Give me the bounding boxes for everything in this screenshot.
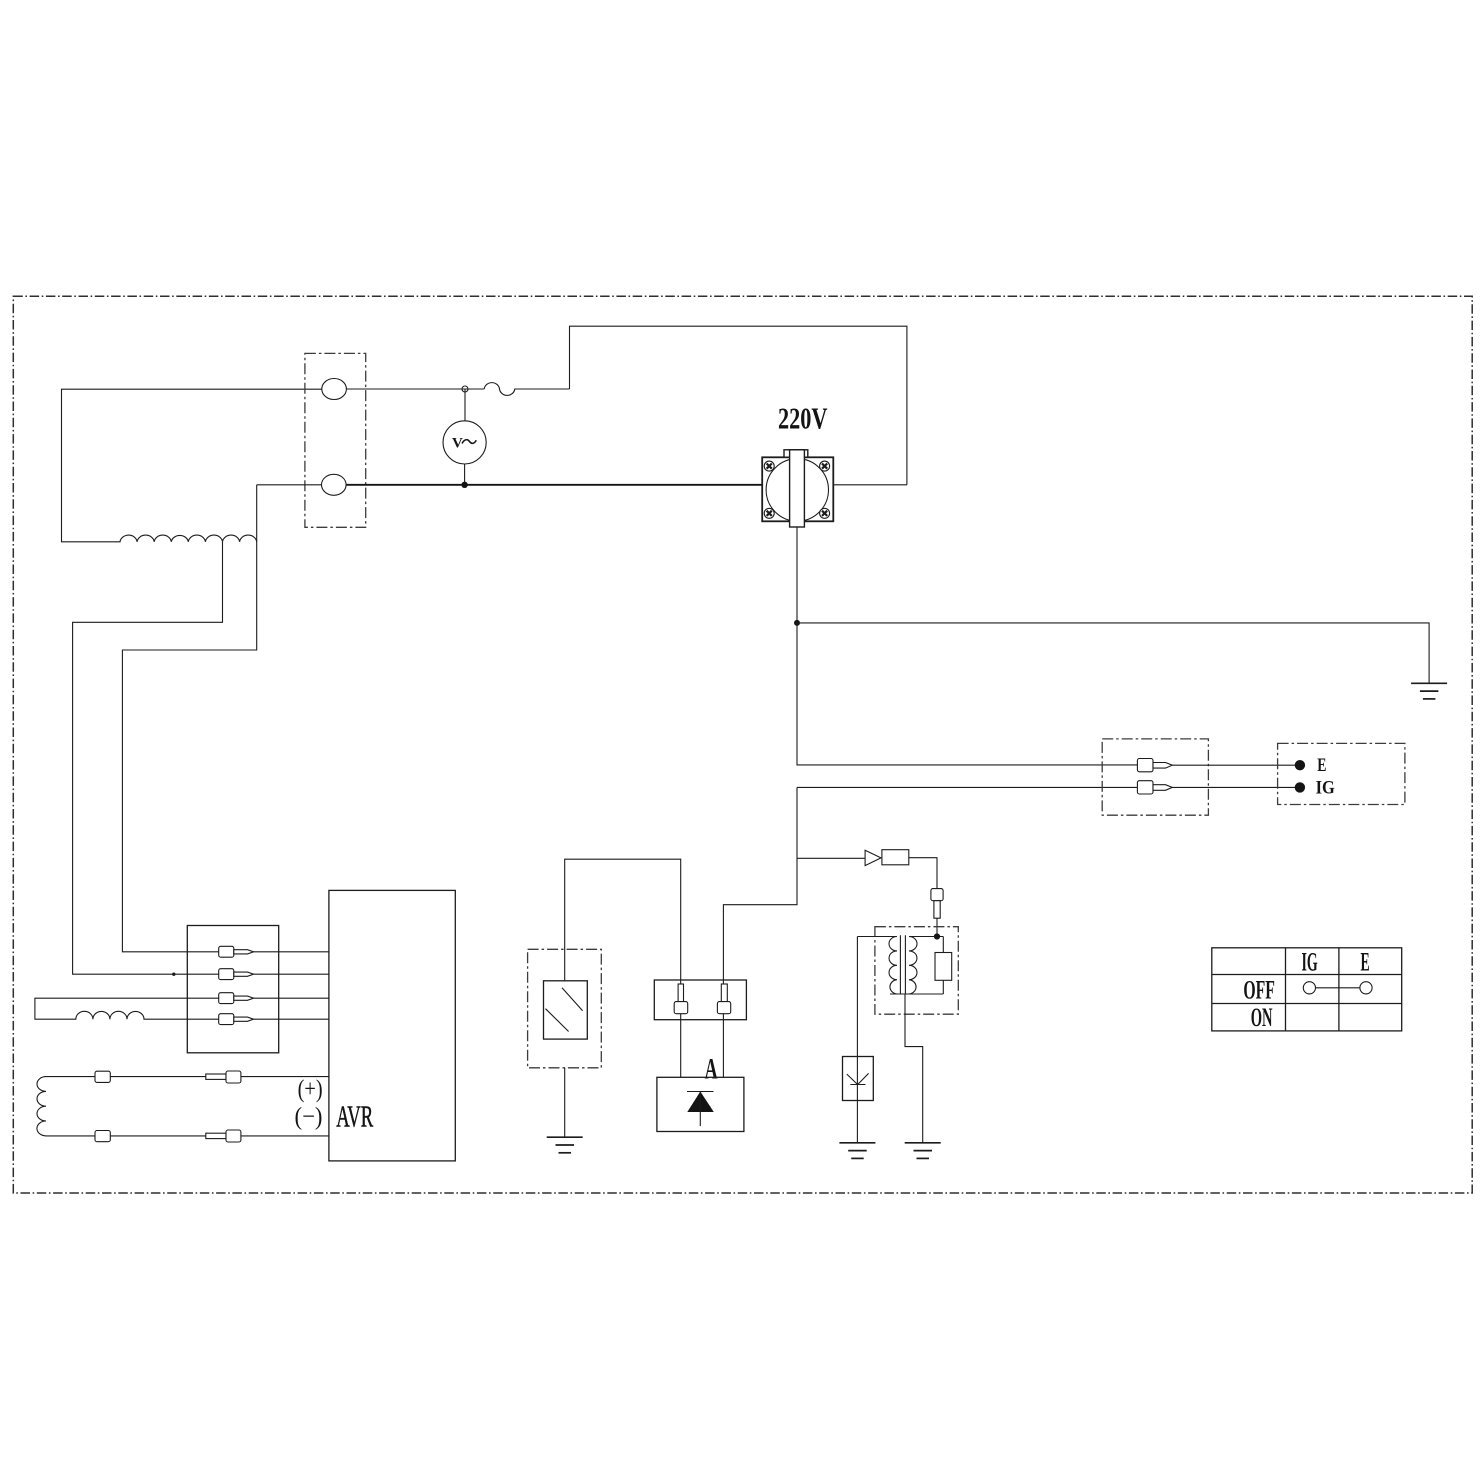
svg-text:AVR: AVR <box>336 1099 373 1134</box>
svg-text:IG: IG <box>1302 947 1318 976</box>
svg-text:V: V <box>452 436 463 452</box>
svg-text:(+): (+) <box>298 1076 323 1103</box>
svg-text:E: E <box>1317 755 1326 776</box>
svg-text:OFF: OFF <box>1243 976 1275 1005</box>
svg-text:A: A <box>705 1053 718 1086</box>
svg-text:ON: ON <box>1251 1003 1273 1032</box>
svg-text:IG: IG <box>1316 778 1335 799</box>
svg-text:(−): (−) <box>295 1104 323 1131</box>
svg-text:E: E <box>1361 947 1370 976</box>
svg-text:220V: 220V <box>778 400 828 435</box>
